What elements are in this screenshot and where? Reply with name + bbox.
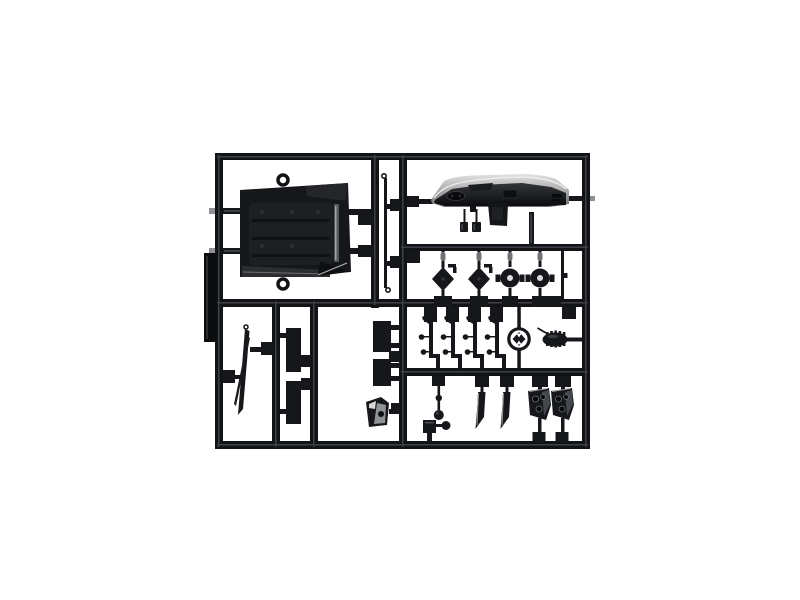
glovebox	[503, 190, 517, 198]
gate-block	[555, 376, 571, 387]
gate-block	[475, 376, 489, 387]
gate-block	[532, 376, 548, 387]
gate-block	[391, 403, 400, 409]
gate-block	[502, 296, 518, 307]
gate-block	[500, 376, 514, 387]
sprue-photo	[0, 0, 800, 600]
pedal-left	[460, 222, 468, 232]
gate-block	[390, 256, 400, 268]
gate-block	[562, 307, 576, 319]
gate-block	[434, 296, 452, 307]
gate-block	[432, 376, 445, 386]
gate-block	[556, 432, 569, 442]
instrument-cluster	[447, 192, 465, 201]
gate-block	[358, 245, 373, 257]
gate-block	[301, 378, 311, 390]
pedal-right	[472, 222, 481, 232]
gate-block	[407, 251, 420, 263]
photo-stage	[0, 0, 800, 600]
gate-block	[261, 342, 273, 355]
gate-block	[301, 355, 311, 367]
gate-block	[223, 370, 235, 383]
gate-block	[533, 432, 546, 442]
gate-block	[358, 213, 373, 225]
gate-block	[532, 296, 548, 307]
steering-column	[470, 205, 476, 212]
gate-block	[407, 196, 419, 207]
gate-block	[470, 296, 488, 307]
gate-block	[548, 296, 561, 307]
gate-block	[390, 199, 400, 211]
sprue-id-tag	[204, 253, 217, 342]
